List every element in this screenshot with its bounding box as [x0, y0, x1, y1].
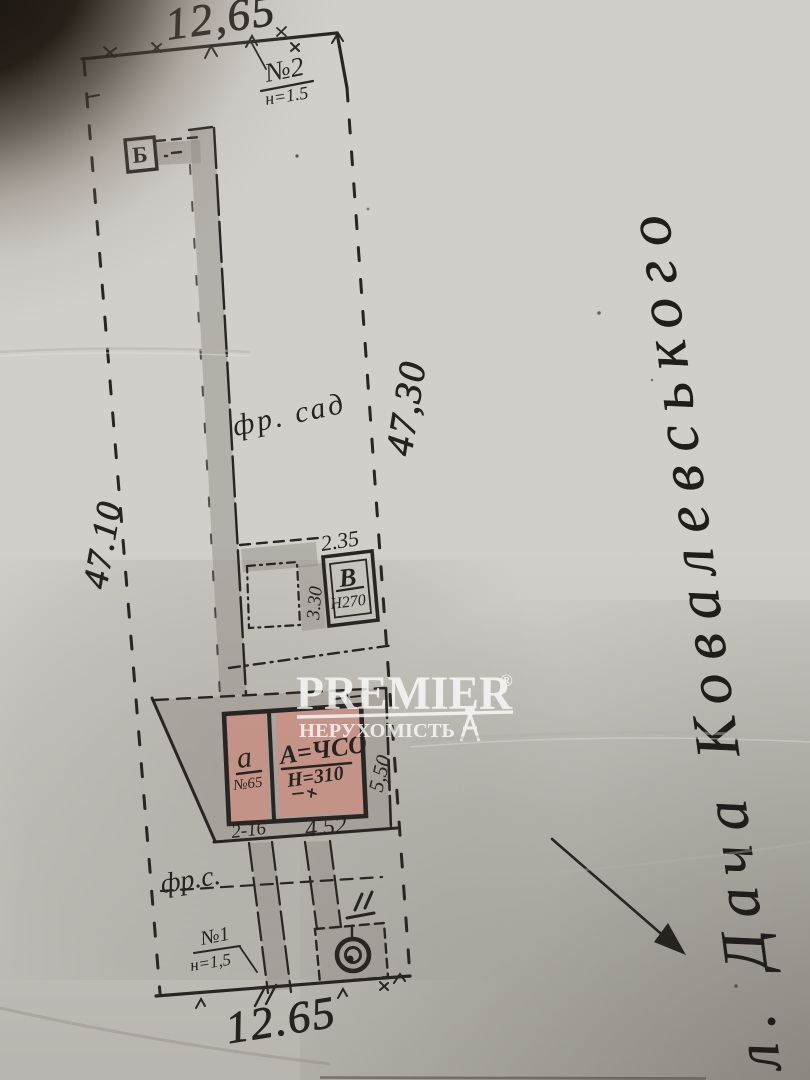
svg-text:4.52: 4.52 — [304, 812, 349, 843]
svg-text:2-16: 2-16 — [230, 818, 268, 843]
svg-text:3.30: 3.30 — [303, 585, 327, 621]
svg-text:®: ® — [500, 671, 513, 690]
